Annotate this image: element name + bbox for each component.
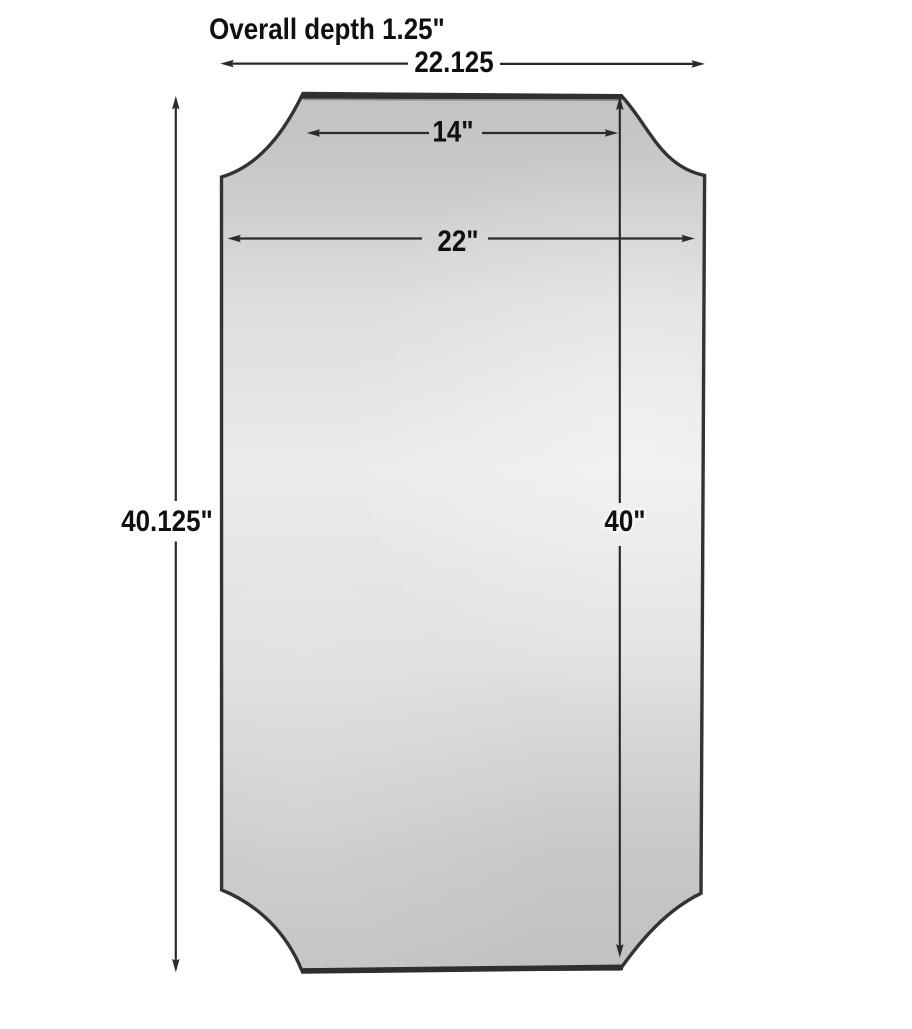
svg-text:22.125: 22.125	[414, 45, 493, 78]
svg-text:14": 14"	[432, 115, 473, 148]
svg-text:22": 22"	[437, 224, 478, 257]
svg-text:Overall depth 1.25": Overall depth 1.25"	[209, 12, 445, 45]
svg-text:40": 40"	[604, 504, 645, 537]
svg-text:40.125": 40.125"	[121, 504, 213, 537]
